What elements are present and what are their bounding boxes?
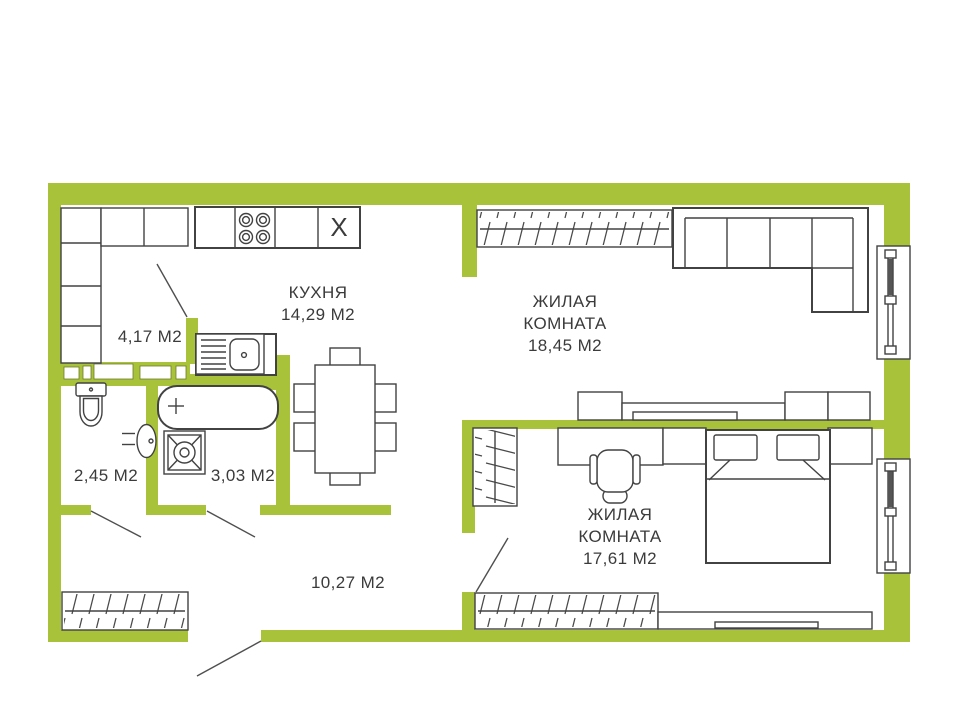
entrance-door-swing: [197, 641, 261, 676]
wc-door-swing: [91, 511, 141, 537]
wall-bottom-left: [48, 630, 188, 642]
pillow: [777, 435, 819, 460]
room-name-line: ЖИЛАЯ: [490, 291, 640, 313]
tv: [633, 412, 737, 420]
tv-dresser: [658, 612, 872, 629]
wall-left: [48, 183, 61, 642]
pillow: [714, 435, 757, 460]
office-chair: [590, 450, 640, 503]
room-label-living-1: ЖИЛАЯ КОМНАТА 18,45 М2: [490, 291, 640, 357]
wash-basin: [122, 425, 156, 458]
cabinet: [578, 392, 622, 420]
dining-table: [315, 365, 375, 473]
room-area: 18,45 М2: [490, 335, 640, 357]
room-name-line: КОМНАТА: [545, 526, 695, 548]
wall-bedroom-hall-lower: [462, 592, 475, 630]
dressing-door-swing: [157, 264, 187, 317]
cabinet: [828, 392, 870, 420]
sink-basin: [230, 339, 259, 370]
wall-top: [48, 183, 910, 205]
room-area: 14,29 М2: [243, 304, 393, 326]
double-bed: [706, 430, 830, 563]
wall-bottom-right: [261, 630, 910, 642]
room-area: 4,17 М2: [85, 326, 215, 348]
floor-plan: КУХНЯ 14,29 М2 ЖИЛАЯ КОМНАТА 18,45 М2 ЖИ…: [0, 0, 960, 710]
room-area: 17,61 М2: [545, 548, 695, 570]
room-area: 3,03 М2: [178, 465, 308, 487]
room-name-line: КОМНАТА: [490, 313, 640, 335]
room-label-dressing: 4,17 М2: [85, 326, 215, 348]
floor-plan-drawing: [0, 0, 960, 710]
bedroom-wardrobe-left: [473, 428, 517, 506]
bathroom-door-swing: [207, 511, 255, 537]
kitchen-cabinet-x-mark: X: [322, 209, 356, 245]
nightstand-right: [828, 428, 872, 464]
toilet: [76, 383, 106, 426]
tv: [715, 622, 818, 628]
living-wardrobe: [477, 210, 672, 247]
window-living: [877, 246, 910, 359]
bedroom-door-swing: [476, 538, 508, 592]
window-bedroom: [877, 459, 910, 573]
room-label-kitchen: КУХНЯ 14,29 М2: [243, 282, 393, 326]
tv-console: [578, 392, 870, 420]
dining-set: [294, 348, 396, 485]
wall-bath-bottom: [146, 505, 206, 515]
bathtub: [158, 386, 278, 429]
hallway-coat-rack: [62, 592, 188, 630]
room-area: 2,45 М2: [41, 465, 171, 487]
room-area: 10,27 М2: [283, 572, 413, 594]
corner-sofa: [673, 208, 868, 312]
bedroom-wardrobe-bottom: [475, 593, 658, 629]
wall-kitchen-living-stub: [462, 205, 477, 277]
nightstand-left: [663, 428, 706, 464]
room-name: КУХНЯ: [243, 282, 393, 304]
room-name-line: ЖИЛАЯ: [545, 504, 695, 526]
room-label-wc: 2,45 М2: [41, 465, 171, 487]
room-label-living-2: ЖИЛАЯ КОМНАТА 17,61 М2: [545, 504, 695, 570]
room-label-hallway: 10,27 М2: [283, 572, 413, 594]
cabinet: [785, 392, 828, 420]
room-label-bathroom: 3,03 М2: [178, 465, 308, 487]
wall-wc-bottom: [61, 505, 91, 515]
